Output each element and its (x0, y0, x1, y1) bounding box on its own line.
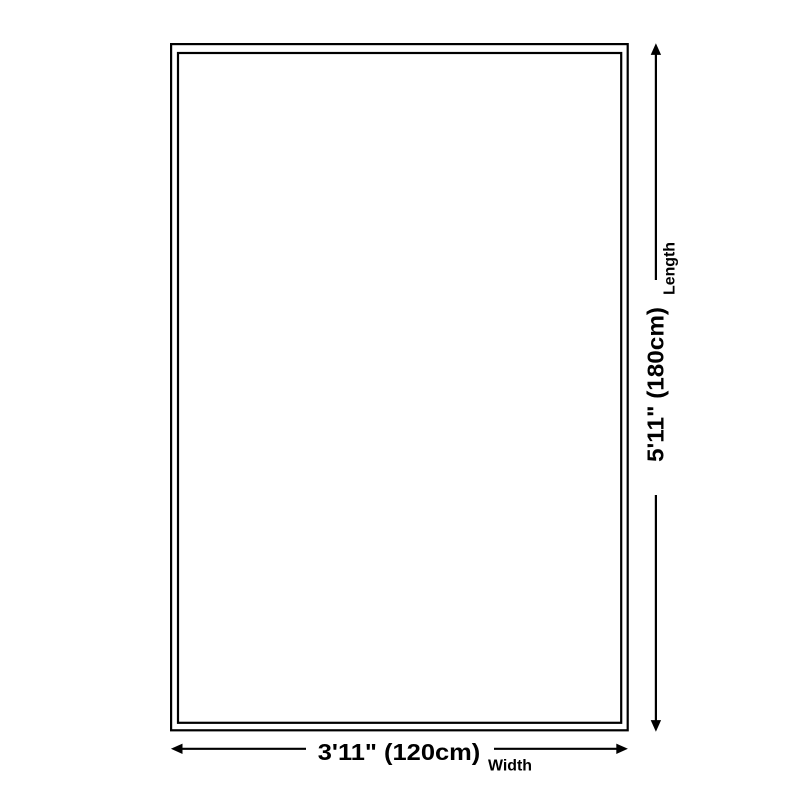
svg-text:5'11" (180cm): 5'11" (180cm) (643, 307, 669, 462)
svg-text:Length: Length (662, 242, 679, 295)
svg-text:3'11" (120cm): 3'11" (120cm) (318, 739, 481, 765)
svg-text:Width: Width (488, 757, 532, 774)
